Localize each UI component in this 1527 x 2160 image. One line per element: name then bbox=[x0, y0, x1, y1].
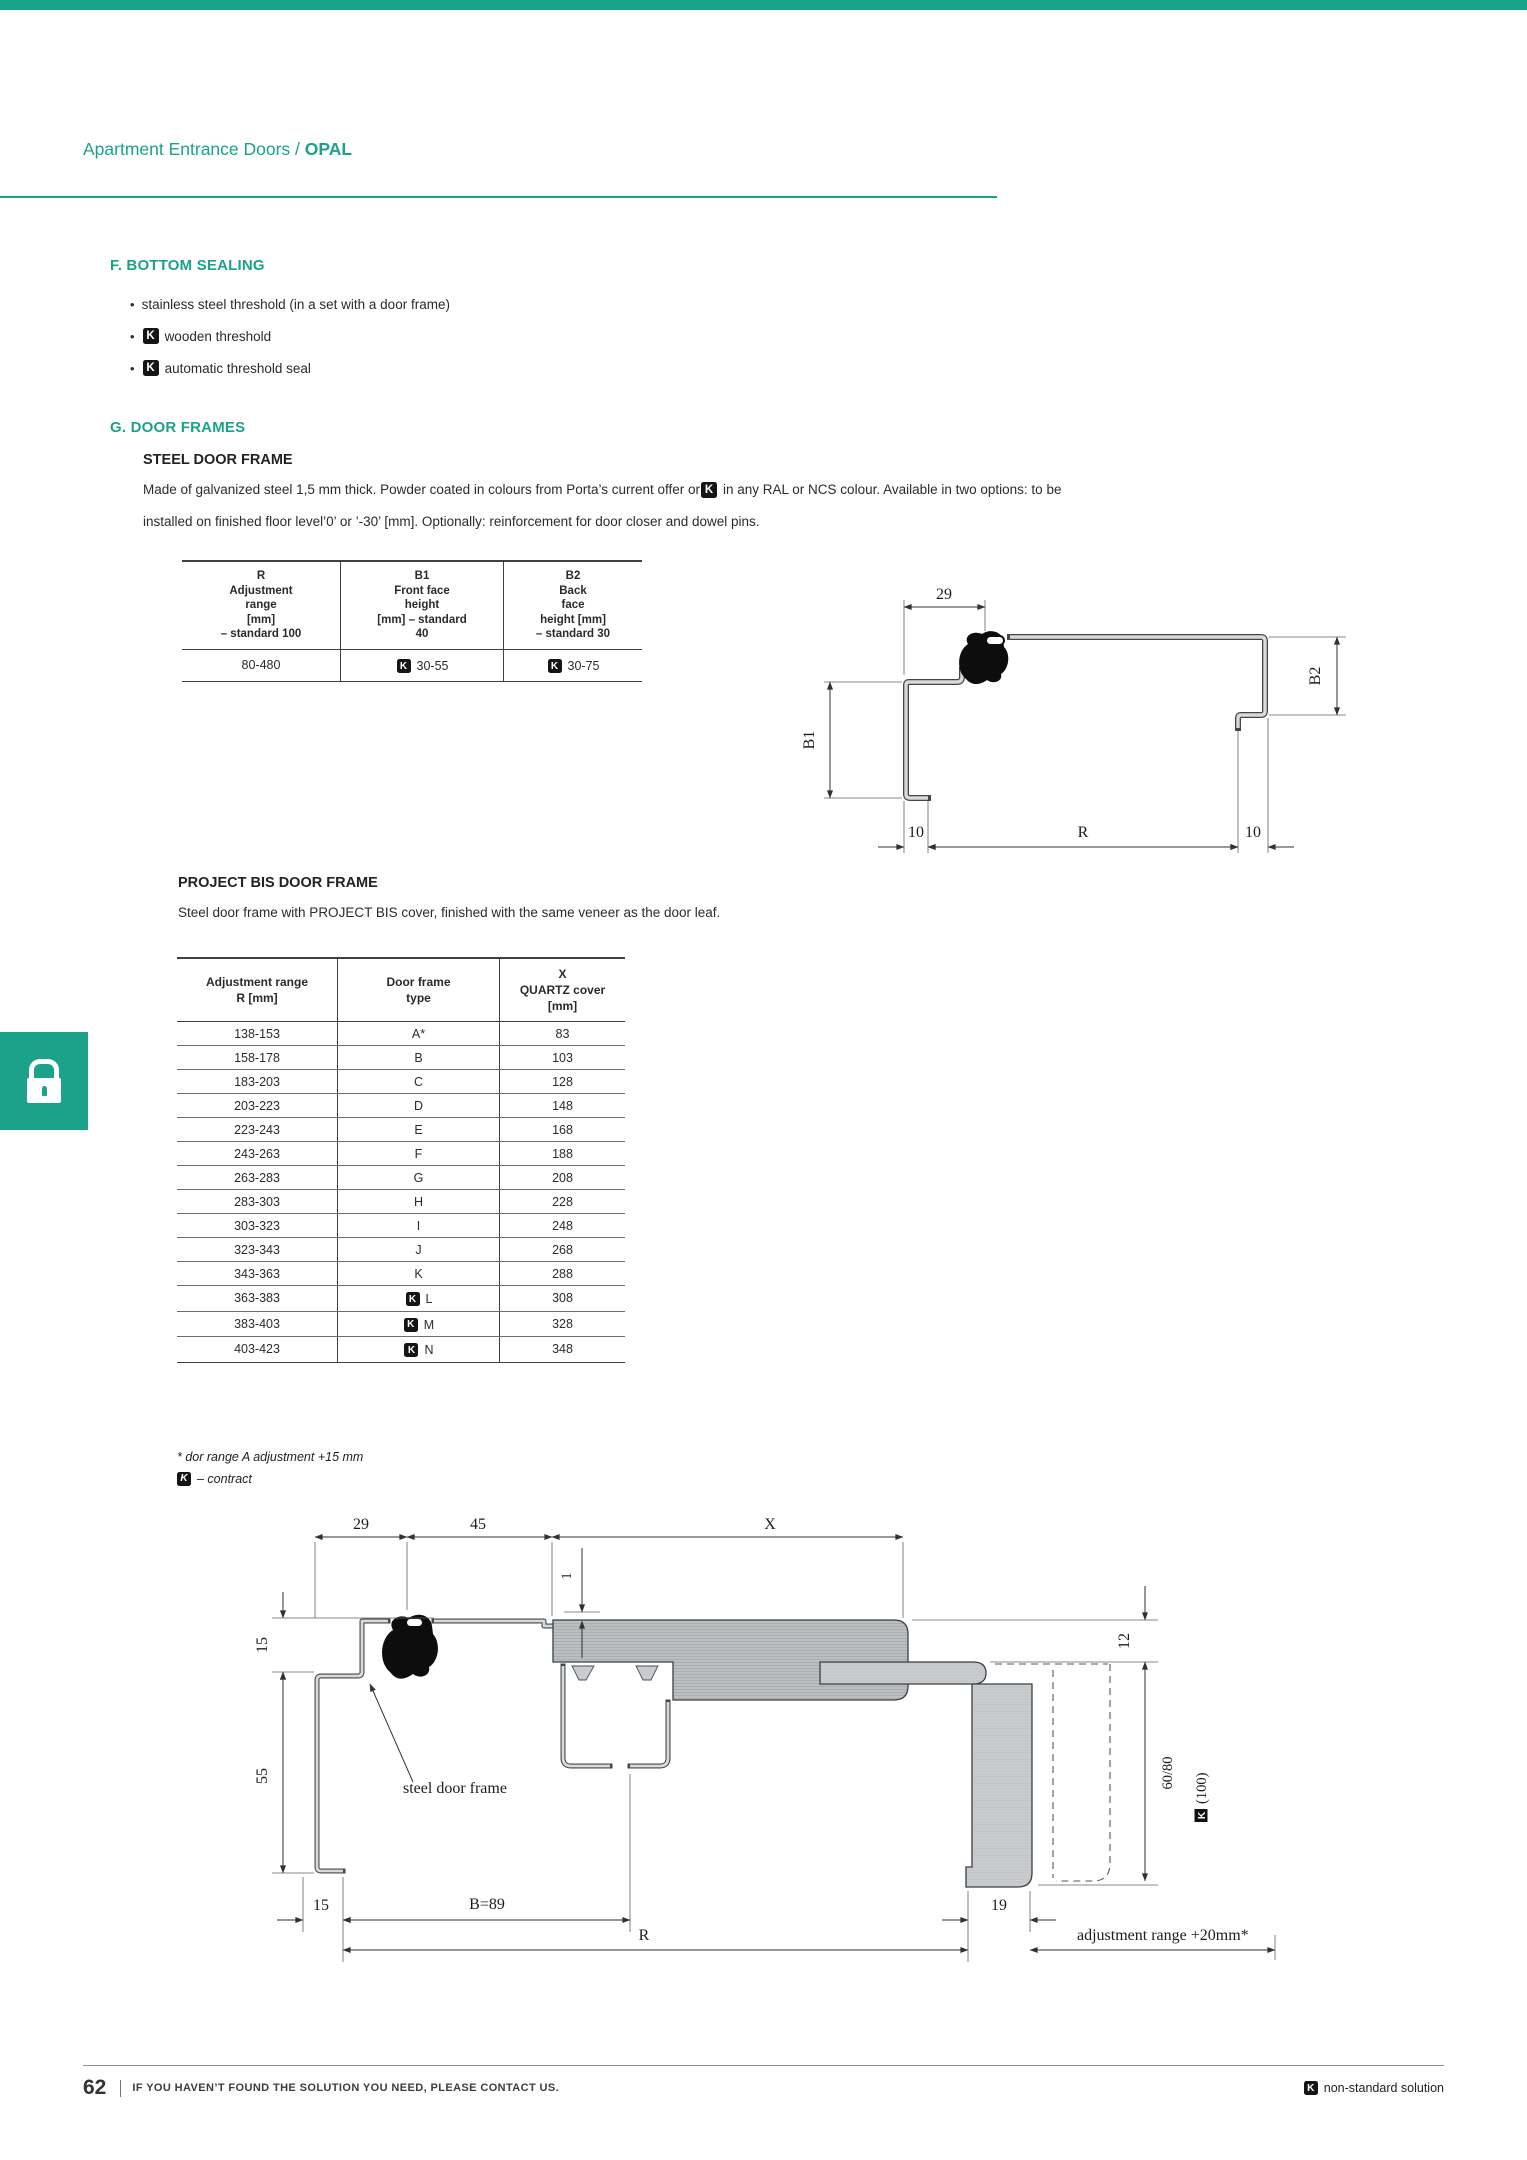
table-row: 158-178B103 bbox=[177, 1046, 625, 1070]
project-bis-section-drawing: 29 45 X 1 15 55 steel door frame 12 60/8… bbox=[200, 1490, 1320, 1970]
cell-value: J bbox=[415, 1243, 421, 1257]
table-cell: J bbox=[338, 1238, 500, 1262]
bullet-icon: • bbox=[130, 297, 135, 312]
footnote-contract: K – contract bbox=[177, 1468, 363, 1490]
page-number: 62 bbox=[83, 2076, 106, 2100]
k-logo-icon: K bbox=[701, 482, 717, 498]
k-logo-icon: K bbox=[143, 360, 159, 376]
header-divider bbox=[0, 196, 997, 198]
column-header: Adjustment range R [mm] bbox=[177, 958, 338, 1022]
column-header: Door frame type bbox=[338, 958, 500, 1022]
table-cell: 228 bbox=[500, 1190, 626, 1214]
dim-label-100: (100) bbox=[1194, 1772, 1210, 1804]
list-item-label: stainless steel threshold (in a set with… bbox=[142, 297, 450, 312]
dimension-lines bbox=[272, 1537, 1275, 1962]
cell-value: B bbox=[414, 1051, 422, 1065]
section-f-title: F. BOTTOM SEALING bbox=[110, 257, 265, 274]
paragraph-line-1: Made of galvanized steel 1,5 mm thick. P… bbox=[143, 474, 1023, 506]
table-cell: 168 bbox=[500, 1118, 626, 1142]
table-cell: 243-263 bbox=[177, 1142, 338, 1166]
k-logo-icon: K bbox=[1304, 2081, 1318, 2095]
list-item: •Kwooden threshold bbox=[130, 320, 450, 352]
table-cell: 158-178 bbox=[177, 1046, 338, 1070]
table-cell: K30-55 bbox=[341, 649, 504, 682]
table-cell: 138-153 bbox=[177, 1022, 338, 1046]
list-item: •stainless steel threshold (in a set wit… bbox=[130, 288, 450, 320]
padlock-icon bbox=[27, 1059, 61, 1103]
cell-value: C bbox=[414, 1075, 423, 1089]
footer: 62 IF YOU HAVEN’T FOUND THE SOLUTION YOU… bbox=[83, 2076, 1444, 2100]
list-item: •Kautomatic threshold seal bbox=[130, 352, 450, 384]
table-row: 403-423KN348 bbox=[177, 1337, 625, 1363]
table-cell: 268 bbox=[500, 1238, 626, 1262]
table-row: 203-223D148 bbox=[177, 1094, 625, 1118]
dim-label-60-80: 60/80 bbox=[1160, 1756, 1176, 1789]
table-row: 303-323I248 bbox=[177, 1214, 625, 1238]
table-cell: E bbox=[338, 1118, 500, 1142]
paragraph-text: in any RAL or NCS colour. Available in t… bbox=[723, 474, 1061, 506]
table-cell: 103 bbox=[500, 1046, 626, 1070]
table-cell: 303-323 bbox=[177, 1214, 338, 1238]
dim-label-1: 1 bbox=[559, 1572, 575, 1579]
table-cell: A* bbox=[338, 1022, 500, 1046]
table-cell: KN bbox=[338, 1337, 500, 1363]
cell-value: 30-55 bbox=[417, 659, 449, 673]
table-row: 183-203C128 bbox=[177, 1070, 625, 1094]
table-row: 283-303H228 bbox=[177, 1190, 625, 1214]
cell-value: L bbox=[426, 1292, 433, 1306]
table-row: 363-383KL308 bbox=[177, 1286, 625, 1312]
table-row: 243-263F188 bbox=[177, 1142, 625, 1166]
table-row: 383-403KM328 bbox=[177, 1311, 625, 1337]
section-g-title: G. DOOR FRAMES bbox=[110, 419, 245, 436]
dim-label-r: R bbox=[639, 1927, 650, 1944]
table-header-row: Adjustment range R [mm]Door frame typeX … bbox=[177, 958, 625, 1022]
project-bis-description: Steel door frame with PROJECT BIS cover,… bbox=[178, 905, 720, 920]
dim-label-10-right: 10 bbox=[1245, 824, 1261, 841]
cell-value: E bbox=[414, 1123, 422, 1137]
cell-value: G bbox=[414, 1171, 424, 1185]
k-logo-icon: K bbox=[143, 328, 159, 344]
table-cell: G bbox=[338, 1166, 500, 1190]
footer-divider bbox=[83, 2065, 1444, 2066]
bullet-icon: • bbox=[130, 361, 135, 376]
k-logo-icon: K bbox=[397, 659, 411, 673]
dim-label-19: 19 bbox=[991, 1897, 1007, 1914]
label-adjustment-range: adjustment range +20mm* bbox=[1077, 1927, 1249, 1944]
cell-value: K bbox=[414, 1267, 422, 1281]
table-cell: C bbox=[338, 1070, 500, 1094]
top-accent-bar bbox=[0, 0, 1527, 10]
table-cell: 403-423 bbox=[177, 1337, 338, 1363]
svg-text:K: K bbox=[1196, 1811, 1208, 1819]
dim-label-b1: B1 bbox=[801, 731, 818, 750]
table-cell: 148 bbox=[500, 1094, 626, 1118]
security-section-tab bbox=[0, 1032, 88, 1130]
steel-frame-cross-section-drawing: 29 B1 B2 10 R 10 bbox=[790, 575, 1360, 870]
cell-value: F bbox=[415, 1147, 423, 1161]
table-cell: K bbox=[338, 1262, 500, 1286]
table-cell: 323-343 bbox=[177, 1238, 338, 1262]
table-cell: KM bbox=[338, 1311, 500, 1337]
frame-cover-strip bbox=[820, 1662, 986, 1684]
table-cell: 248 bbox=[500, 1214, 626, 1238]
cell-value: I bbox=[417, 1219, 420, 1233]
table-header-row: R Adjustment range [mm] – standard 100B1… bbox=[182, 561, 642, 649]
project-bis-table: Adjustment range R [mm]Door frame typeX … bbox=[177, 957, 625, 1363]
table-cell: 203-223 bbox=[177, 1094, 338, 1118]
column-header: R Adjustment range [mm] – standard 100 bbox=[182, 561, 341, 649]
rubber-seal bbox=[382, 1615, 438, 1679]
steel-door-frame-heading: STEEL DOOR FRAME bbox=[143, 452, 293, 468]
list-item-label: wooden threshold bbox=[165, 329, 272, 344]
k-logo-icon: K bbox=[177, 1472, 191, 1486]
footer-separator bbox=[120, 2080, 121, 2097]
column-header: X QUARTZ cover [mm] bbox=[500, 958, 626, 1022]
table-cell: 283-303 bbox=[177, 1190, 338, 1214]
frame-cover-vertical bbox=[966, 1684, 1032, 1887]
column-header: B1 Front face height [mm] – standard 40 bbox=[341, 561, 504, 649]
dim-label-29: 29 bbox=[353, 1516, 369, 1533]
dim-label-45: 45 bbox=[470, 1516, 486, 1533]
dim-label-55: 55 bbox=[254, 1768, 271, 1784]
table-cell: 328 bbox=[500, 1311, 626, 1337]
table-cell: 208 bbox=[500, 1166, 626, 1190]
table-cell: F bbox=[338, 1142, 500, 1166]
table-cell: 348 bbox=[500, 1337, 626, 1363]
cell-value: N bbox=[424, 1343, 433, 1357]
bottom-sealing-list: •stainless steel threshold (in a set wit… bbox=[130, 288, 450, 384]
table-cell: 308 bbox=[500, 1286, 626, 1312]
paragraph-text: Made of galvanized steel 1,5 mm thick. P… bbox=[143, 474, 700, 506]
paragraph-line-2: installed on finished floor level’0’ or … bbox=[143, 506, 1023, 538]
table-cell: K30-75 bbox=[504, 649, 643, 682]
dim-label-29: 29 bbox=[936, 586, 952, 603]
footer-legend-text: non-standard solution bbox=[1324, 2081, 1444, 2095]
table-row: 80-480 K30-55 K30-75 bbox=[182, 649, 642, 682]
table-cell: B bbox=[338, 1046, 500, 1070]
k-logo-icon: K bbox=[548, 659, 562, 673]
cell-value: A* bbox=[412, 1027, 425, 1041]
table-cell: 383-403 bbox=[177, 1311, 338, 1337]
door-leaf bbox=[553, 1620, 908, 1700]
table-cell: D bbox=[338, 1094, 500, 1118]
cell-value: M bbox=[424, 1318, 434, 1332]
dim-label-x: X bbox=[764, 1516, 776, 1533]
steel-frame-table: R Adjustment range [mm] – standard 100B1… bbox=[182, 560, 642, 682]
bullet-icon: • bbox=[130, 329, 135, 344]
footnote-asterisk: * dor range A adjustment +15 mm bbox=[177, 1446, 363, 1468]
dim-label-10-left: 10 bbox=[908, 824, 924, 841]
table-cell: 188 bbox=[500, 1142, 626, 1166]
cell-value: D bbox=[414, 1099, 423, 1113]
label-steel-door-frame: steel door frame bbox=[403, 1780, 507, 1797]
table-cell: 223-243 bbox=[177, 1118, 338, 1142]
table-row: 138-153A*83 bbox=[177, 1022, 625, 1046]
footer-message: IF YOU HAVEN’T FOUND THE SOLUTION YOU NE… bbox=[132, 2082, 559, 2094]
table-cell: 263-283 bbox=[177, 1166, 338, 1190]
project-bis-table-body: 138-153A*83158-178B103183-203C128203-223… bbox=[177, 1022, 625, 1363]
dim-label-12: 12 bbox=[1116, 1633, 1133, 1649]
table-cell: H bbox=[338, 1190, 500, 1214]
table-cell: 83 bbox=[500, 1022, 626, 1046]
dim-label-b2: B2 bbox=[1307, 667, 1324, 686]
table-cell: 128 bbox=[500, 1070, 626, 1094]
dim-label-15-bottom: 15 bbox=[313, 1897, 329, 1914]
rubber-seal bbox=[959, 631, 1008, 684]
table-cell: 343-363 bbox=[177, 1262, 338, 1286]
footnote-text: – contract bbox=[197, 1468, 252, 1490]
breadcrumb-category: Apartment Entrance Doors / bbox=[83, 139, 300, 159]
k-logo-icon: K bbox=[404, 1318, 418, 1332]
table-cell: 183-203 bbox=[177, 1070, 338, 1094]
table-row: 323-343J268 bbox=[177, 1238, 625, 1262]
dim-label-15-left: 15 bbox=[254, 1637, 271, 1653]
column-header: B2 Back face height [mm] – standard 30 bbox=[504, 561, 643, 649]
table-cell: 288 bbox=[500, 1262, 626, 1286]
table-cell: 80-480 bbox=[182, 649, 341, 682]
project-bis-heading: PROJECT BIS DOOR FRAME bbox=[178, 875, 378, 891]
breadcrumb-product: OPAL bbox=[305, 139, 352, 159]
table-cell: KL bbox=[338, 1286, 500, 1312]
cell-value: H bbox=[414, 1195, 423, 1209]
paragraph-text: installed on finished floor level’0’ or … bbox=[143, 506, 760, 538]
breadcrumb: Apartment Entrance Doors / OPAL bbox=[83, 139, 352, 160]
table-cell: 363-383 bbox=[177, 1286, 338, 1312]
table-row: 263-283G208 bbox=[177, 1166, 625, 1190]
table-row: 223-243E168 bbox=[177, 1118, 625, 1142]
dim-label-r: R bbox=[1078, 824, 1089, 841]
footer-legend: K non-standard solution bbox=[1303, 2081, 1444, 2095]
cell-value: 30-75 bbox=[568, 659, 600, 673]
list-item-label: automatic threshold seal bbox=[165, 361, 311, 376]
table-row: 343-363K288 bbox=[177, 1262, 625, 1286]
table-cell: I bbox=[338, 1214, 500, 1238]
k-logo-icon: K bbox=[404, 1343, 418, 1357]
footnotes: * dor range A adjustment +15 mm K – cont… bbox=[177, 1446, 363, 1490]
k-logo-icon: K bbox=[406, 1292, 420, 1306]
dim-label-100-group: K (100) bbox=[1194, 1772, 1210, 1822]
dim-label-b89: B=89 bbox=[469, 1896, 505, 1913]
steel-door-frame-paragraph: Made of galvanized steel 1,5 mm thick. P… bbox=[143, 474, 1023, 538]
